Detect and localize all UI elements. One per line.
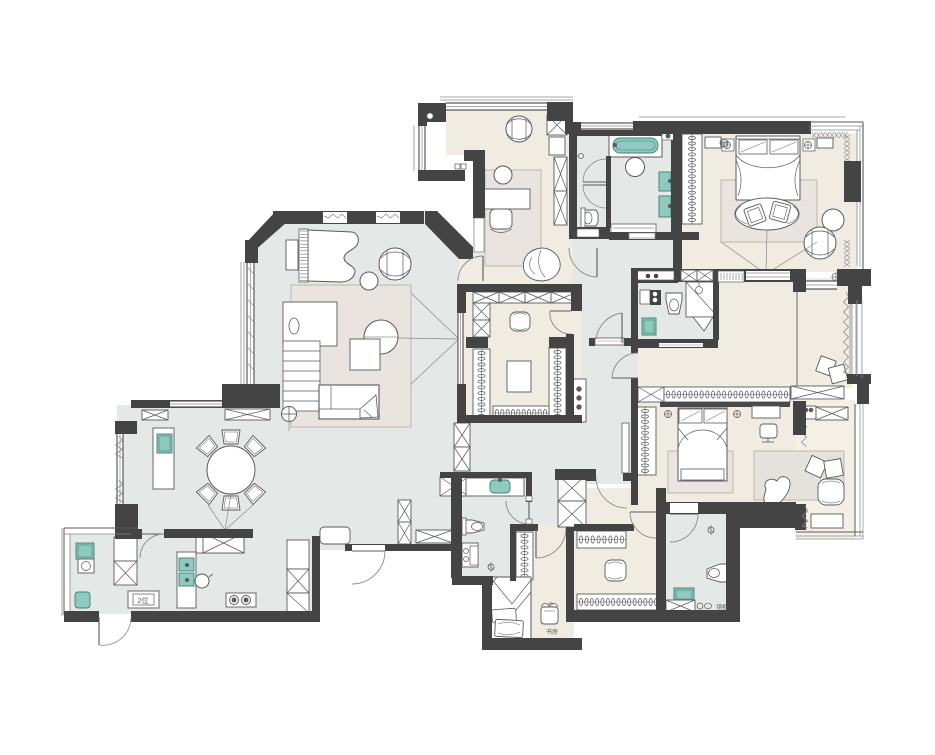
svg-text:书房: 书房 — [546, 628, 558, 636]
svg-text:2位: 2位 — [138, 596, 149, 605]
